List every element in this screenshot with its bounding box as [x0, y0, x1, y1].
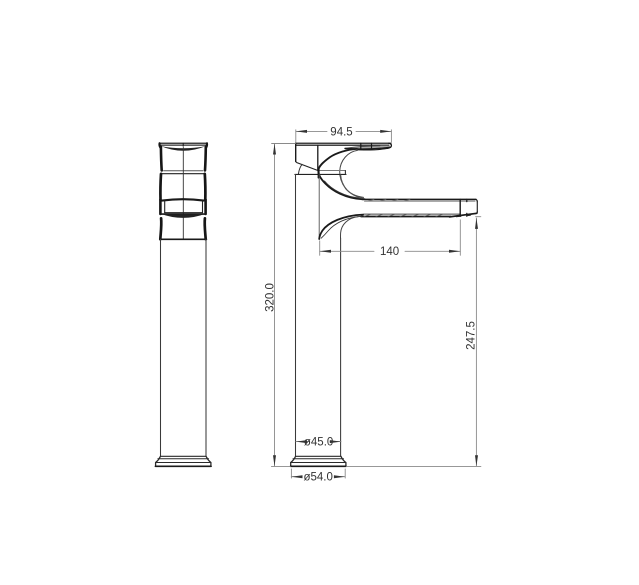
- svg-text:ø54.0: ø54.0: [303, 472, 332, 484]
- svg-text:140: 140: [380, 246, 399, 258]
- svg-text:94.5: 94.5: [330, 127, 352, 139]
- svg-text:320.0: 320.0: [265, 283, 277, 312]
- svg-text:247.5: 247.5: [466, 321, 478, 350]
- svg-text:ø45.0: ø45.0: [304, 437, 333, 449]
